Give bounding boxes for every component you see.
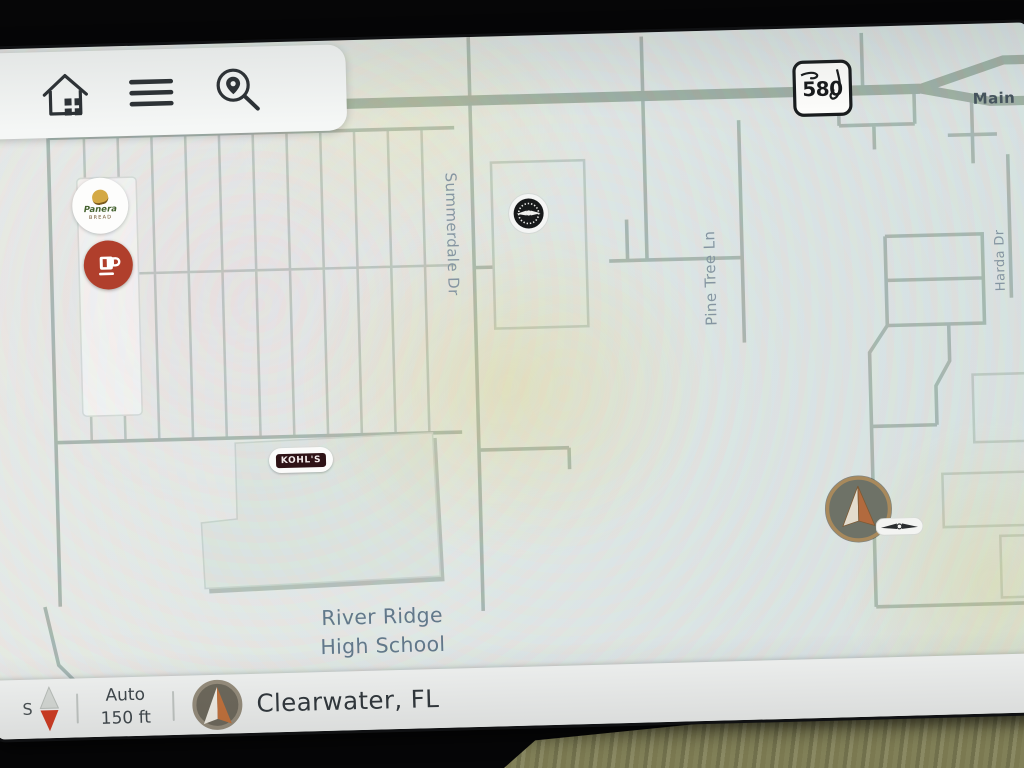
history-button[interactable] <box>0 53 23 141</box>
brand-badge <box>876 517 923 536</box>
infotainment-screen: Summerdale Dr Pine Tree Ln Harda Dr Main… <box>0 22 1024 739</box>
street-label-summerdale: Summerdale Dr <box>442 172 463 296</box>
home-button[interactable] <box>21 50 109 138</box>
location-label: Clearwater, FL <box>256 684 439 718</box>
current-location-chip[interactable]: Clearwater, FL <box>190 672 440 732</box>
compass-needle-icon <box>38 685 61 732</box>
map-search-icon <box>211 63 264 116</box>
history-circle-icon <box>0 76 13 117</box>
search-button[interactable] <box>193 46 281 134</box>
divider <box>76 693 79 723</box>
location-arrow-icon <box>190 677 245 732</box>
place-label-river-ridge-high-school: River Ridge High School <box>282 600 483 663</box>
coffee-cup-icon <box>95 252 122 279</box>
wings-logo-icon <box>876 517 923 536</box>
route-shield-580: 580 <box>792 59 853 118</box>
compass-letter: S <box>22 700 33 719</box>
poi-kohls[interactable]: KOHL'S <box>269 447 334 474</box>
cabin-photo-backdrop: Summerdale Dr Pine Tree Ln Harda Dr Main… <box>0 0 1024 768</box>
menu-icon <box>125 72 178 113</box>
compass-button[interactable]: S <box>22 685 61 732</box>
menu-button[interactable] <box>107 48 195 136</box>
map-canvas[interactable]: Summerdale Dr Pine Tree Ln Harda Dr Main… <box>0 22 1024 739</box>
kohls-logo: KOHL'S <box>276 452 327 467</box>
street-label-harda: Harda Dr <box>992 229 1009 291</box>
zoom-level-control[interactable]: Auto 150 ft <box>94 684 157 730</box>
zoom-mode: Auto <box>94 684 157 708</box>
poi-winged-badge[interactable] <box>507 192 550 235</box>
winged-badge-icon <box>507 192 550 235</box>
home-icon <box>38 67 93 122</box>
street-label-pine-tree: Pine Tree Ln <box>700 230 720 326</box>
zoom-scale: 150 ft <box>95 706 158 730</box>
street-label-main: Main <box>973 89 1016 108</box>
map-toolbar <box>0 44 347 140</box>
divider <box>172 690 175 720</box>
